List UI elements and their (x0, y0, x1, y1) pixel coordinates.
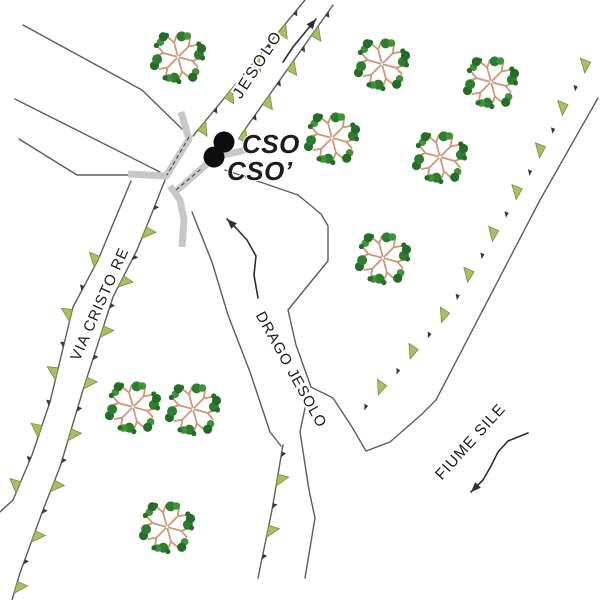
tree-foliage (424, 175, 429, 180)
tree-foliage (154, 43, 159, 48)
tree-foliage (497, 57, 505, 65)
tree-foliage (119, 383, 124, 388)
tree-foliage (151, 391, 156, 396)
tree-foliage (338, 113, 346, 121)
tree-foliage (184, 32, 192, 40)
tree-foliage (177, 543, 186, 552)
site-map: JESOLOVIA CRISTO REDRAGO JESOLOFIUME SIL… (0, 0, 600, 600)
tree-foliage (509, 66, 514, 71)
tree-foliage (177, 427, 182, 432)
tree-foliage (438, 179, 443, 184)
tree-foliage (215, 407, 220, 412)
tree-foliage (357, 255, 367, 265)
tree-foliage (342, 154, 351, 163)
tree-foliage (131, 429, 136, 434)
tree-foliage (318, 114, 323, 119)
tree-foliage (401, 242, 406, 247)
label-cso: CSO (242, 129, 300, 159)
tree-foliage (141, 524, 151, 534)
tree-foliage (477, 58, 482, 63)
tree-foliage (308, 124, 313, 129)
tree-foliage (162, 75, 167, 80)
tree-foliage (462, 155, 467, 160)
tree-foliage (368, 40, 373, 45)
tree-foliage (369, 234, 374, 239)
tree-foliage (400, 48, 405, 53)
tree-foliage (211, 393, 216, 398)
tree-foliage (416, 143, 421, 148)
tree-foliage (203, 425, 212, 434)
tree-foliage (388, 39, 396, 47)
tree-foliage (153, 503, 158, 508)
tree-foliage (392, 80, 401, 89)
tree-foliage (167, 406, 177, 416)
tree-foliage (367, 276, 372, 281)
tree-foliage (366, 82, 371, 87)
tree-foliage (164, 33, 169, 38)
tree-foliage (358, 50, 363, 55)
tree-foliage (359, 244, 364, 249)
tree-foliage (173, 502, 181, 510)
tree-foliage (426, 133, 431, 138)
tree-foliage (330, 160, 335, 165)
tree-foliage (152, 54, 162, 64)
tree-foliage (151, 545, 156, 550)
tree-foliage (350, 122, 355, 127)
tree-foliage (107, 404, 117, 414)
tree-foliage (191, 431, 196, 436)
tree-foliage (169, 395, 174, 400)
tree-foliage (381, 280, 386, 285)
tree-foliage (501, 98, 510, 107)
tree-foliage (393, 274, 402, 283)
cso-prime-marker (204, 147, 225, 168)
tree-foliage (306, 135, 316, 145)
tree-foliage (189, 525, 194, 530)
tree-foliage (356, 61, 366, 71)
tree-foliage (446, 132, 454, 140)
tree-foliage (176, 79, 181, 84)
tree-foliage (450, 173, 459, 182)
tree-foliage (188, 73, 197, 82)
label-cso-prime: CSO’ (227, 156, 293, 186)
tree-foliage (143, 513, 148, 518)
tree-foliage (165, 549, 170, 554)
map-canvas: JESOLOVIA CRISTO REDRAGO JESOLOFIUME SIL… (0, 0, 600, 600)
tree-foliage (513, 80, 518, 85)
tree-foliage (179, 385, 184, 390)
tree-foliage (414, 154, 424, 164)
tree-foliage (155, 405, 160, 410)
tree-foliage (475, 100, 480, 105)
tree-foliage (458, 141, 463, 146)
tree-foliage (465, 79, 475, 89)
tree-foliage (109, 393, 114, 398)
tree-foliage (196, 41, 201, 46)
tree-foliage (185, 511, 190, 516)
tree-foliage (389, 233, 397, 241)
tree-foliage (405, 256, 410, 261)
tree-foliage (467, 68, 472, 73)
tree-foliage (199, 384, 207, 392)
tree-foliage (489, 104, 494, 109)
tree-foliage (139, 382, 147, 390)
tree-foliage (380, 86, 385, 91)
tree-foliage (316, 156, 321, 161)
tree-foliage (143, 423, 152, 432)
tree-foliage (354, 136, 359, 141)
tree-foliage (404, 62, 409, 67)
tree-foliage (117, 425, 122, 430)
tree-foliage (200, 55, 205, 60)
